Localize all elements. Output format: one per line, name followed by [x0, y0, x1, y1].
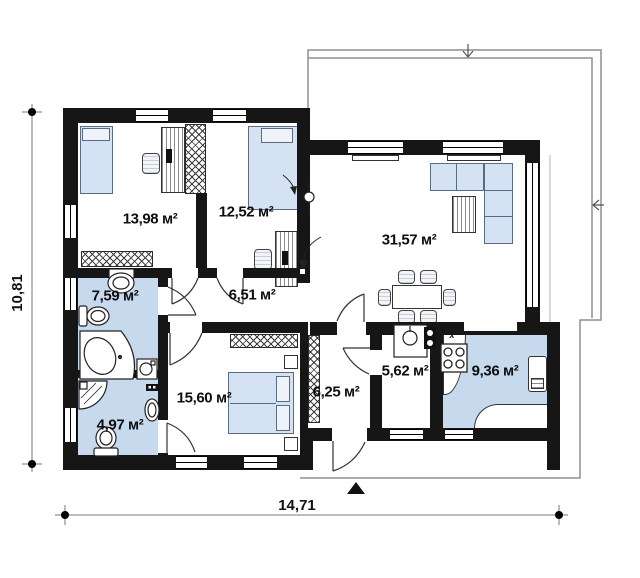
airflow-arrow-icon [283, 175, 321, 270]
boiler-mark: x [449, 330, 454, 340]
floor-lamp-icon [304, 182, 314, 214]
room-label-shower-room: 4,97 м² [97, 417, 144, 434]
entrance-arrow-icon [347, 482, 365, 494]
washing-machine-icon [137, 359, 157, 379]
switch-icon [146, 384, 158, 391]
canopy-arrow-icon [463, 44, 604, 210]
dimension-left: 10,81 [9, 104, 42, 472]
sink-icon [145, 399, 159, 421]
room-label-kitchen: 9,36 м² [472, 363, 519, 380]
room-label-living-room: 31,57 м² [382, 232, 437, 249]
corner-bathtub-icon [78, 331, 134, 380]
room-label-bedroom-3: 15,60 м² [177, 390, 232, 407]
utility-sink-icon [394, 325, 427, 357]
shower-icon [79, 381, 107, 409]
toilet-icon [79, 306, 109, 326]
room-label-bedroom-1: 13,98 м² [123, 211, 178, 228]
door-swing-icon [167, 278, 370, 471]
room-label-bedroom-2: 12,52 м² [219, 204, 274, 221]
cooktop-icon [441, 344, 467, 372]
floor-plan: 10,81 14,71 13,98 м² 12,52 м² 31,57 м² 7… [0, 0, 640, 578]
dimension-bottom: 14,71 [55, 497, 568, 525]
room-label-utility-room: 5,62 м² [382, 363, 429, 380]
room-label-hallway: 6,51 м² [229, 287, 276, 304]
room-label-entrance-hall: 6,25 м² [313, 384, 360, 401]
dimension-height-label: 10,81 [9, 274, 26, 312]
vent-icon [300, 269, 305, 274]
dimension-width-label: 14,71 [278, 497, 316, 514]
room-label-bathroom: 7,59 м² [92, 288, 139, 305]
canopy-outline [300, 50, 601, 478]
appliance-icon [424, 327, 436, 349]
